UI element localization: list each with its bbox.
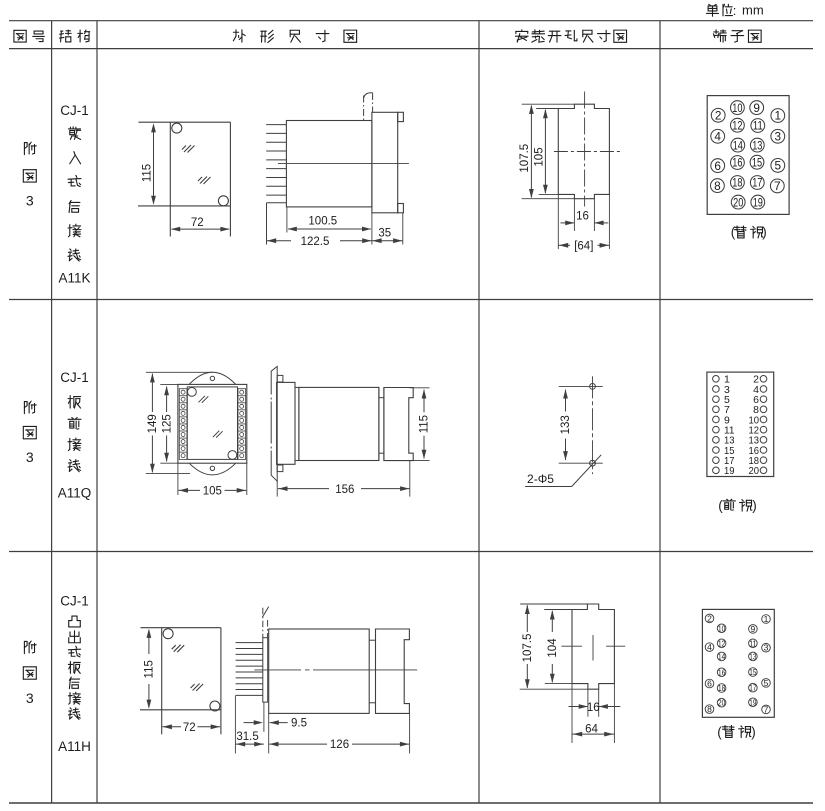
svg-text:16: 16 — [587, 702, 600, 714]
svg-text:72: 72 — [183, 722, 196, 734]
svg-text:2: 2 — [707, 613, 712, 623]
svg-text:(: ( — [717, 724, 722, 739]
svg-text:115: 115 — [142, 164, 154, 182]
svg-text:19: 19 — [749, 697, 756, 707]
svg-text:100.5: 100.5 — [308, 216, 337, 228]
svg-text:156: 156 — [335, 484, 354, 496]
svg-text:15: 15 — [752, 155, 763, 169]
svg-text:CJ-1: CJ-1 — [60, 103, 89, 118]
svg-text:A11K: A11K — [58, 271, 90, 286]
svg-text:3: 3 — [26, 193, 34, 209]
svg-text:115: 115 — [144, 660, 156, 678]
svg-text:16: 16 — [732, 156, 743, 170]
svg-text:107.5: 107.5 — [522, 634, 534, 663]
svg-text:mm: mm — [742, 3, 764, 18]
svg-text:16: 16 — [576, 211, 589, 223]
svg-text:6: 6 — [714, 159, 721, 173]
svg-text:6: 6 — [707, 679, 712, 689]
svg-text:4: 4 — [714, 130, 721, 144]
svg-text:9: 9 — [753, 101, 760, 115]
svg-text:1: 1 — [764, 614, 769, 624]
svg-text:20: 20 — [733, 195, 744, 209]
svg-text:104: 104 — [547, 638, 559, 658]
svg-text:18: 18 — [732, 176, 743, 190]
svg-text:CJ-1: CJ-1 — [60, 593, 89, 608]
svg-text:[64]: [64] — [574, 240, 593, 252]
svg-text:8: 8 — [707, 704, 712, 714]
svg-text:9.5: 9.5 — [291, 718, 307, 730]
svg-text:126: 126 — [330, 739, 349, 751]
svg-text:): ) — [751, 724, 756, 739]
svg-text:5: 5 — [764, 678, 769, 688]
svg-text:115: 115 — [419, 415, 431, 433]
svg-text:14: 14 — [718, 651, 725, 661]
svg-text:17: 17 — [752, 176, 762, 190]
svg-text:11: 11 — [749, 638, 756, 648]
svg-text:2: 2 — [715, 109, 722, 123]
svg-text:8: 8 — [714, 179, 721, 193]
svg-text:64: 64 — [585, 724, 598, 736]
svg-text:3: 3 — [764, 643, 769, 653]
svg-text:149: 149 — [147, 414, 159, 433]
svg-text:A11H: A11H — [58, 739, 91, 754]
svg-text:3: 3 — [26, 690, 34, 706]
svg-text:105: 105 — [534, 147, 546, 166]
svg-text:13: 13 — [749, 651, 756, 661]
svg-text:A11Q: A11Q — [58, 485, 92, 500]
svg-text:16: 16 — [718, 667, 725, 677]
svg-text:19: 19 — [724, 465, 735, 477]
svg-text:125: 125 — [161, 414, 173, 433]
svg-text:20: 20 — [718, 698, 725, 708]
svg-text:10: 10 — [718, 623, 725, 633]
svg-text:10: 10 — [732, 101, 743, 115]
svg-text:107.5: 107.5 — [519, 144, 531, 173]
svg-text:18: 18 — [718, 683, 725, 693]
svg-text:15: 15 — [749, 667, 756, 677]
svg-text:105: 105 — [203, 486, 222, 498]
svg-text:): ) — [752, 498, 757, 513]
svg-text:3: 3 — [26, 449, 34, 465]
svg-text:133: 133 — [560, 415, 572, 434]
svg-text:31.5: 31.5 — [236, 731, 258, 743]
svg-text::: : — [733, 3, 737, 18]
svg-text:14: 14 — [733, 138, 744, 152]
svg-text:9: 9 — [751, 624, 756, 634]
svg-text:1: 1 — [775, 109, 782, 123]
svg-text:4: 4 — [707, 642, 712, 652]
svg-text:13: 13 — [752, 138, 763, 152]
svg-text:19: 19 — [753, 195, 763, 209]
svg-text:12: 12 — [718, 638, 725, 648]
svg-text:2-Φ5: 2-Φ5 — [527, 472, 554, 486]
svg-text:7: 7 — [774, 179, 781, 193]
svg-text:17: 17 — [749, 683, 756, 693]
svg-text:20: 20 — [749, 465, 760, 477]
svg-text:): ) — [762, 225, 767, 240]
svg-text:35: 35 — [378, 228, 391, 240]
svg-text:12: 12 — [732, 118, 742, 132]
svg-text:11: 11 — [753, 119, 763, 133]
svg-text:122.5: 122.5 — [301, 236, 330, 248]
svg-text:5: 5 — [775, 159, 782, 173]
svg-text:3: 3 — [775, 130, 782, 144]
svg-text:CJ-1: CJ-1 — [60, 370, 89, 385]
svg-text:7: 7 — [764, 704, 769, 714]
svg-text:(: ( — [718, 498, 723, 513]
svg-text:72: 72 — [191, 217, 204, 229]
